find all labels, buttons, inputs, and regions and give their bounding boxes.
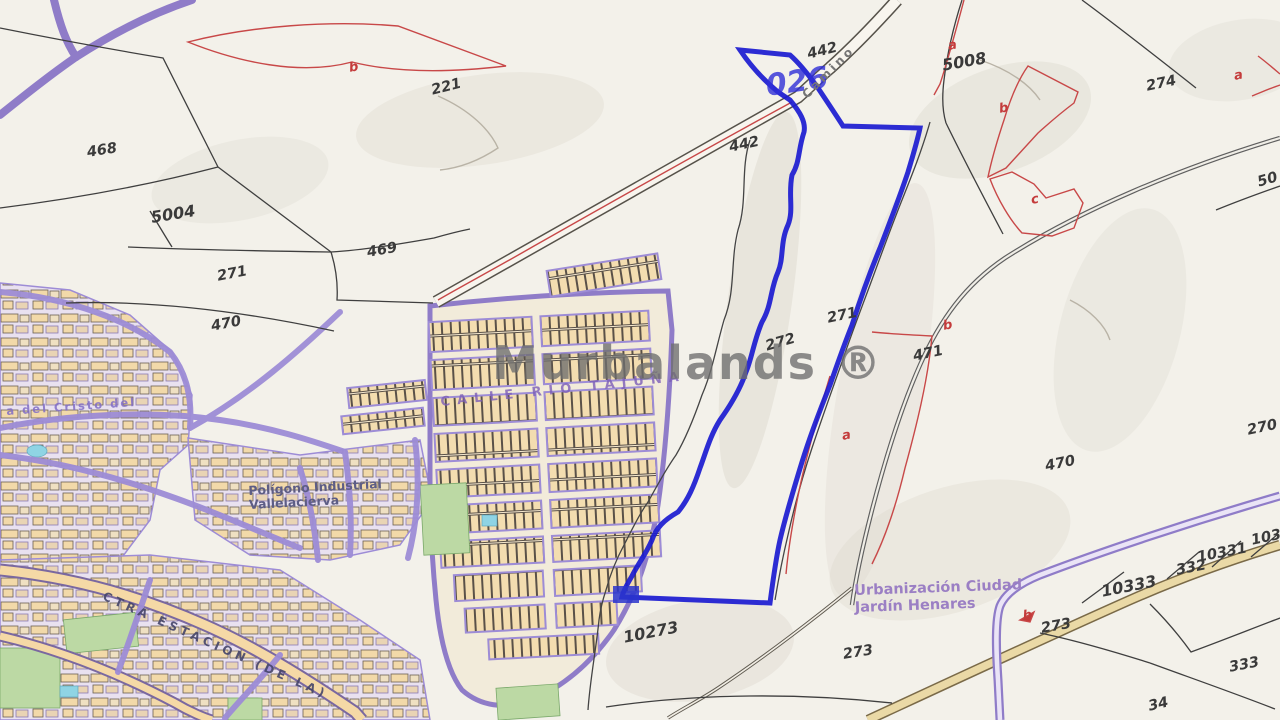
watermark: Murbalands ® bbox=[492, 336, 883, 390]
subparcel-letter-b-273: b bbox=[1022, 609, 1033, 623]
subparcel-letter-b-471: b bbox=[942, 318, 953, 332]
subparcel-letter-c-hill: c bbox=[1030, 193, 1040, 207]
area-label-urbanizacion: Urbanización Ciudad Jardín Henares bbox=[854, 577, 1023, 616]
subparcel-letter-b-topleft: b bbox=[348, 60, 359, 74]
map-viewport[interactable]: 468 5004 271 470 b 221 469 442 442 026 C… bbox=[0, 0, 1280, 720]
blue-marker-rect bbox=[613, 586, 639, 603]
subparcel-letter-b-hill: b bbox=[998, 101, 1009, 115]
